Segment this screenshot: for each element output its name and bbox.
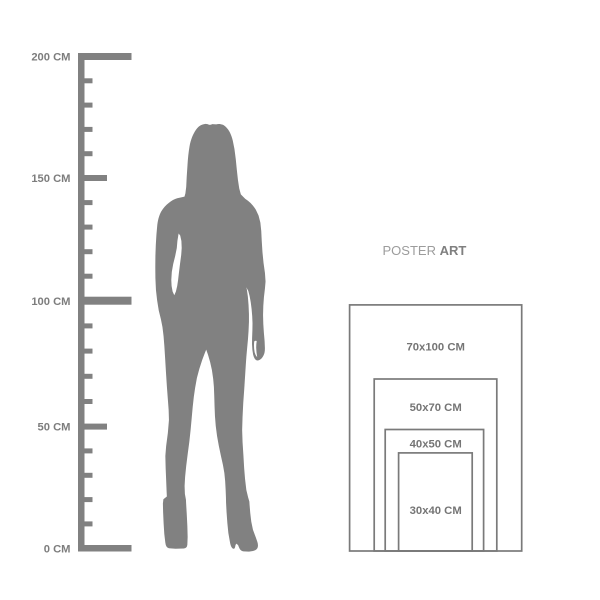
svg-text:50 CM: 50 CM [38,422,71,434]
svg-text:30x40 CM: 30x40 CM [410,505,462,517]
svg-text:0 CM: 0 CM [44,543,71,555]
svg-text:POSTER ART: POSTER ART [383,243,467,258]
svg-text:200 CM: 200 CM [31,52,70,64]
svg-text:50x70 CM: 50x70 CM [410,402,462,414]
svg-text:100 CM: 100 CM [31,296,70,308]
svg-text:150 CM: 150 CM [31,173,70,185]
svg-text:40x50 CM: 40x50 CM [410,439,462,451]
svg-text:70x100 CM: 70x100 CM [406,341,464,353]
